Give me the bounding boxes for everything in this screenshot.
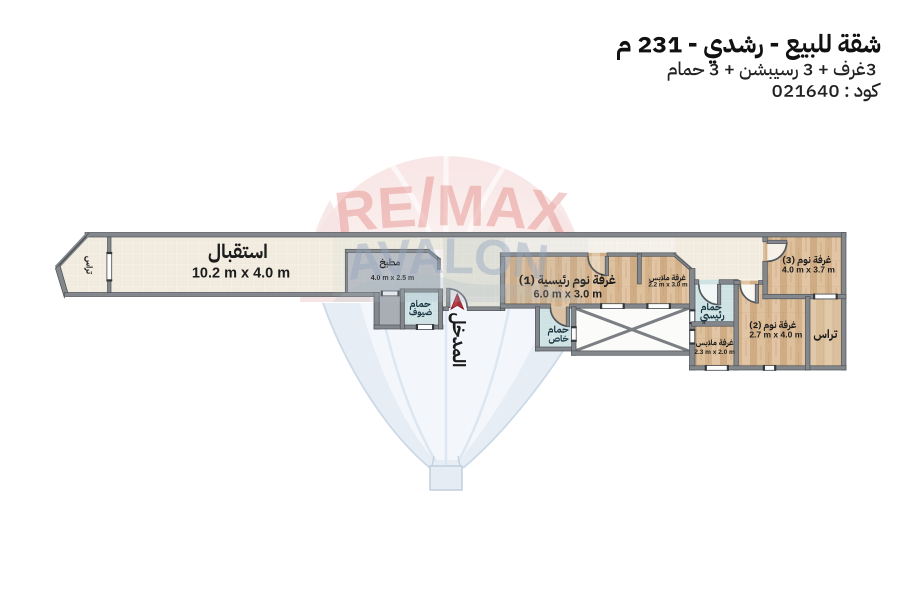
svg-text:2.3 m x 2.0 m: 2.3 m x 2.0 m [694,349,735,356]
svg-text:2.7 m x 4.0 m: 2.7 m x 4.0 m [749,330,802,340]
svg-text:AVALON: AVALON [343,228,551,291]
svg-text:10.2 m x 4.0 m: 10.2 m x 4.0 m [192,266,290,282]
svg-text:2.2 m x 3.0 m: 2.2 m x 3.0 m [648,282,688,289]
svg-text:4.0 m x 3.7 m: 4.0 m x 3.7 m [782,265,835,275]
